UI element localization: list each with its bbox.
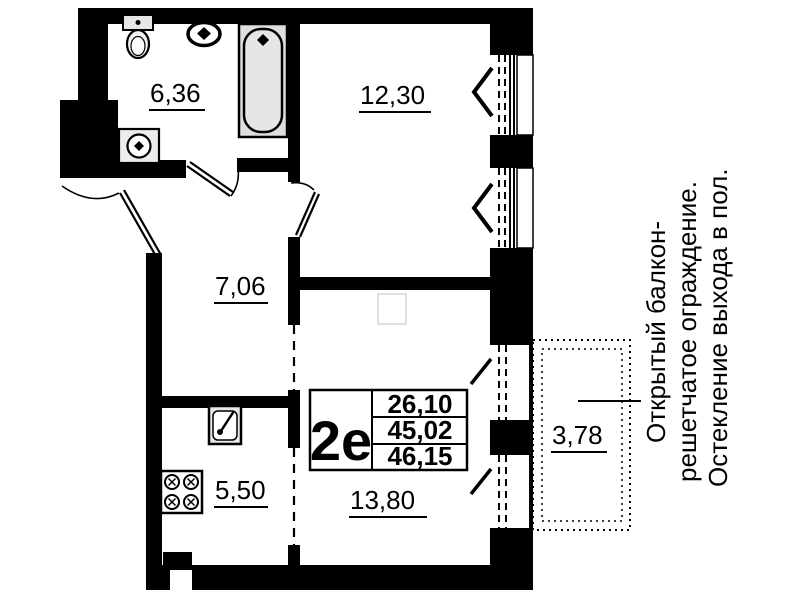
annotation-line-1: Открытый балкон- [641,221,671,443]
bathroom-door-leaf [187,166,230,196]
kitchen-sink-tap-base [217,429,223,435]
kitchen-area-label: 5,50 [215,475,266,505]
wall-pier-4 [490,420,533,455]
living-room-area-label: 13,80 [350,485,415,515]
walls [60,8,533,590]
balcony-annotation: Открытый балкон- решетчатое ограждение. … [641,168,733,487]
balcony-open-slash [471,469,491,494]
bedroom-door [291,183,319,237]
wall-bedroom-living [288,277,490,290]
bedroom-window-1 [474,55,533,135]
entrance-door-leaf [120,193,157,258]
total-area-with-balcony-value: 46,15 [387,441,452,471]
floor-plan: 6,36 12,30 7,06 5,50 13,80 3,78 2е 26,10… [0,0,799,600]
bathroom-door [187,162,238,196]
faint-fixture-mark [378,294,406,324]
wall-kitchen-living-stub [288,545,300,567]
window-sill [517,55,533,135]
kitchen-sink-icon [209,406,241,444]
wall-bath-bedroom-divider [288,8,300,182]
bathtub-icon [239,24,287,137]
bathroom-area-label: 6,36 [150,78,201,108]
window-sill [517,168,533,248]
bathroom-door-leaf [190,162,233,192]
balcony-area-label: 3,78 [552,420,603,450]
stove-icon [161,471,202,513]
balcony-slab-edge [529,340,533,530]
bedroom-door-leaf [300,194,319,237]
hall-area-label: 7,06 [215,271,266,301]
unit-info-table: 2е 26,10 45,02 46,15 [310,389,467,472]
bedroom-window-2 [474,168,533,248]
entrance-door-arc [62,186,119,199]
window-open-chevron [474,184,492,232]
washing-machine-icon [119,129,159,163]
washbasin-icon [188,23,220,46]
wall-pier-5 [490,528,533,590]
toilet-bowl-inner [131,37,145,56]
wall-left-lower [146,253,162,590]
toilet-tank-button [136,20,141,25]
wall-pier-3 [490,248,533,345]
unit-type-label: 2е [310,409,372,472]
wall-left-upper [78,8,108,104]
wall-pier-1 [490,8,533,55]
balcony-open-slash [471,359,491,384]
wall-bottom [146,565,533,590]
kitchen-duct [163,552,192,570]
wall-bottom-duct-gap [170,570,192,590]
toilet-icon [123,15,153,58]
annotation-line-3: Остекление выхода в пол. [703,168,733,487]
bedroom-door-arc [291,183,314,190]
entrance-door [62,186,161,258]
annotation-line-2: решетчатое ограждение. [672,181,702,482]
wall-pier-2 [490,135,533,168]
entrance-door-leaf [124,190,161,255]
bedroom-door-leaf [296,192,315,235]
floor-plan-drawing: 6,36 12,30 7,06 5,50 13,80 3,78 2е 26,10… [0,0,799,600]
bedroom-area-label: 12,30 [360,80,425,110]
window-open-chevron [474,68,492,116]
